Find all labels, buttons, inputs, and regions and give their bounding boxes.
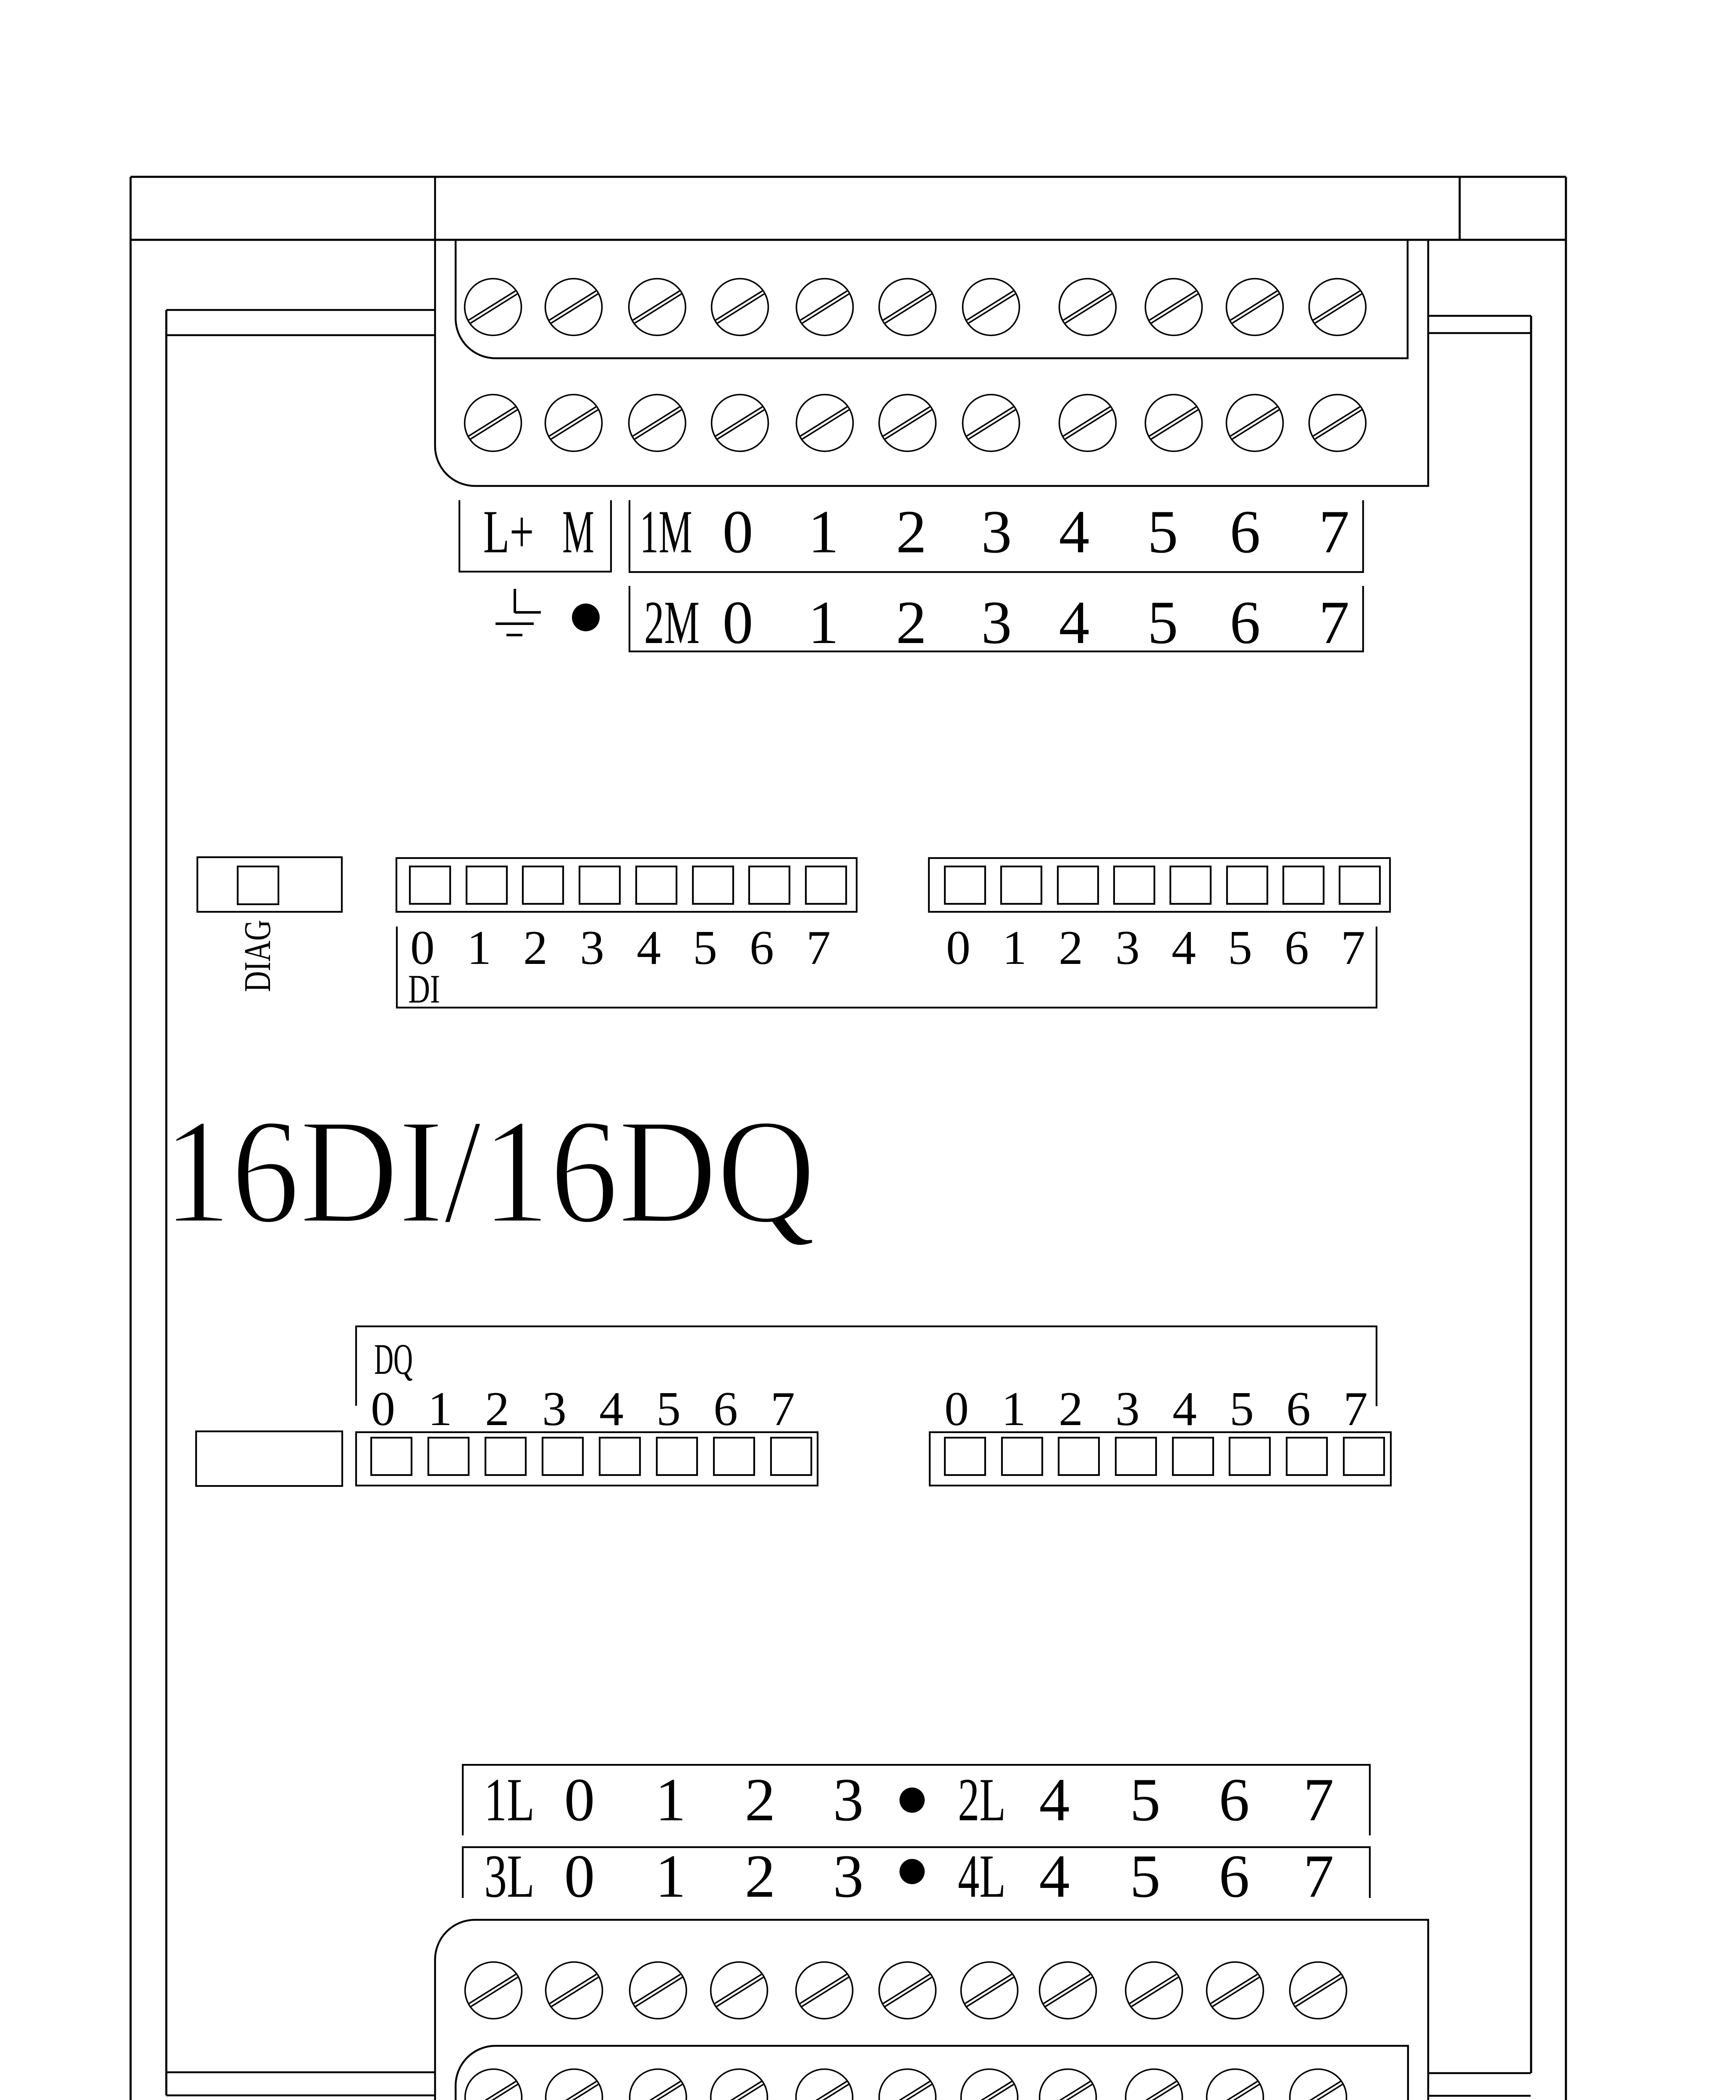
svg-text:0: 0 [723, 588, 753, 656]
svg-text:DQ: DQ [374, 1335, 413, 1383]
svg-text:5: 5 [1130, 1842, 1161, 1910]
svg-text:0: 0 [371, 1382, 395, 1436]
svg-text:1M: 1M [640, 498, 692, 566]
svg-text:4: 4 [637, 921, 661, 975]
svg-text:0: 0 [564, 1766, 595, 1834]
svg-text:6: 6 [1230, 498, 1261, 566]
svg-text:4: 4 [1172, 1382, 1197, 1436]
svg-text:2: 2 [896, 588, 927, 656]
svg-text:6: 6 [713, 1382, 738, 1436]
svg-text:5: 5 [656, 1382, 681, 1436]
svg-text:1: 1 [428, 1382, 452, 1436]
svg-text:2: 2 [745, 1766, 776, 1834]
svg-text:0: 0 [946, 921, 970, 975]
svg-text:5: 5 [1230, 1382, 1254, 1436]
svg-text:2: 2 [745, 1842, 776, 1910]
svg-text:3: 3 [1115, 921, 1140, 975]
svg-text:1: 1 [808, 498, 839, 566]
svg-text:1: 1 [467, 921, 491, 975]
svg-text:4: 4 [1039, 1842, 1070, 1910]
svg-text:3: 3 [833, 1842, 864, 1910]
svg-text:5: 5 [1148, 498, 1178, 566]
svg-text:DIAG: DIAG [237, 920, 278, 992]
svg-text:4: 4 [1059, 498, 1090, 566]
svg-text:0: 0 [564, 1842, 595, 1910]
svg-text:7: 7 [1343, 1382, 1368, 1436]
svg-text:1L: 1L [484, 1766, 535, 1834]
svg-text:7: 7 [1319, 588, 1350, 656]
svg-text:DI: DI [408, 966, 440, 1011]
svg-text:5: 5 [1130, 1766, 1161, 1834]
svg-text:6: 6 [1286, 1382, 1311, 1436]
svg-text:1: 1 [808, 588, 839, 656]
svg-text:1: 1 [656, 1766, 686, 1834]
svg-text:3: 3 [833, 1766, 864, 1834]
svg-text:2: 2 [1059, 921, 1083, 975]
svg-text:4: 4 [599, 1382, 624, 1436]
svg-text:6: 6 [750, 921, 774, 975]
svg-text:4L: 4L [958, 1842, 1006, 1910]
svg-text:3L: 3L [484, 1842, 535, 1910]
svg-text:2: 2 [523, 921, 548, 975]
svg-text:0: 0 [944, 1382, 969, 1436]
svg-text:2: 2 [896, 498, 927, 566]
svg-text:3: 3 [981, 588, 1012, 656]
svg-text:4: 4 [1039, 1766, 1070, 1834]
svg-text:6: 6 [1285, 921, 1309, 975]
svg-text:2M: 2M [644, 588, 700, 656]
svg-text:7: 7 [1303, 1842, 1334, 1910]
svg-text:1: 1 [656, 1842, 686, 1910]
svg-text:16DI/16DQ: 16DI/16DQ [163, 1088, 816, 1255]
svg-text:4: 4 [1059, 588, 1090, 656]
svg-text:7: 7 [771, 1382, 795, 1436]
svg-text:5: 5 [693, 921, 717, 975]
svg-text:7: 7 [1303, 1766, 1334, 1834]
svg-text:6: 6 [1219, 1842, 1250, 1910]
svg-text:7: 7 [1341, 921, 1365, 975]
svg-text:6: 6 [1230, 588, 1261, 656]
svg-text:6: 6 [1219, 1766, 1250, 1834]
svg-text:2: 2 [485, 1382, 509, 1436]
svg-text:3: 3 [981, 498, 1012, 566]
svg-text:7: 7 [1319, 498, 1350, 566]
svg-text:5: 5 [1228, 921, 1252, 975]
svg-text:1: 1 [1002, 921, 1027, 975]
svg-text:L+: L+ [483, 498, 534, 566]
svg-text:2: 2 [1059, 1382, 1083, 1436]
svg-text:3: 3 [542, 1382, 566, 1436]
svg-text:0: 0 [723, 498, 753, 566]
svg-text:1: 1 [1002, 1382, 1026, 1436]
svg-text:2L: 2L [958, 1766, 1006, 1834]
svg-text:5: 5 [1148, 588, 1178, 656]
svg-text:7: 7 [806, 921, 831, 975]
svg-text:3: 3 [1115, 1382, 1140, 1436]
svg-text:M: M [562, 498, 594, 566]
svg-text:3: 3 [580, 921, 604, 975]
svg-text:4: 4 [1172, 921, 1196, 975]
